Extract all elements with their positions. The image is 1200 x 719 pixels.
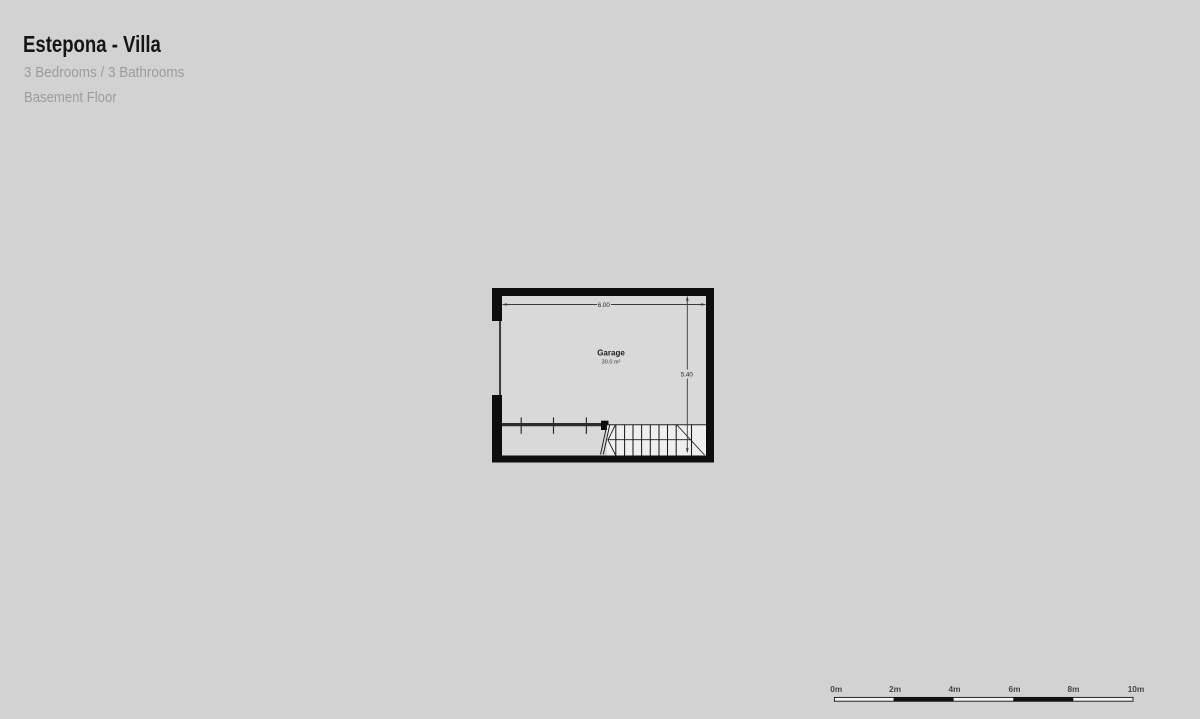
svg-text:6m: 6m	[1009, 684, 1021, 694]
svg-text:6.00: 6.00	[598, 302, 611, 309]
svg-text:10m: 10m	[1128, 684, 1145, 694]
svg-text:Garage: Garage	[597, 349, 625, 358]
svg-text:8m: 8m	[1068, 684, 1080, 694]
svg-text:4m: 4m	[949, 684, 961, 694]
svg-text:0m: 0m	[830, 684, 842, 694]
svg-text:30.0 m²: 30.0 m²	[602, 360, 621, 366]
svg-text:5.40: 5.40	[681, 371, 694, 378]
svg-text:2m: 2m	[889, 684, 901, 694]
